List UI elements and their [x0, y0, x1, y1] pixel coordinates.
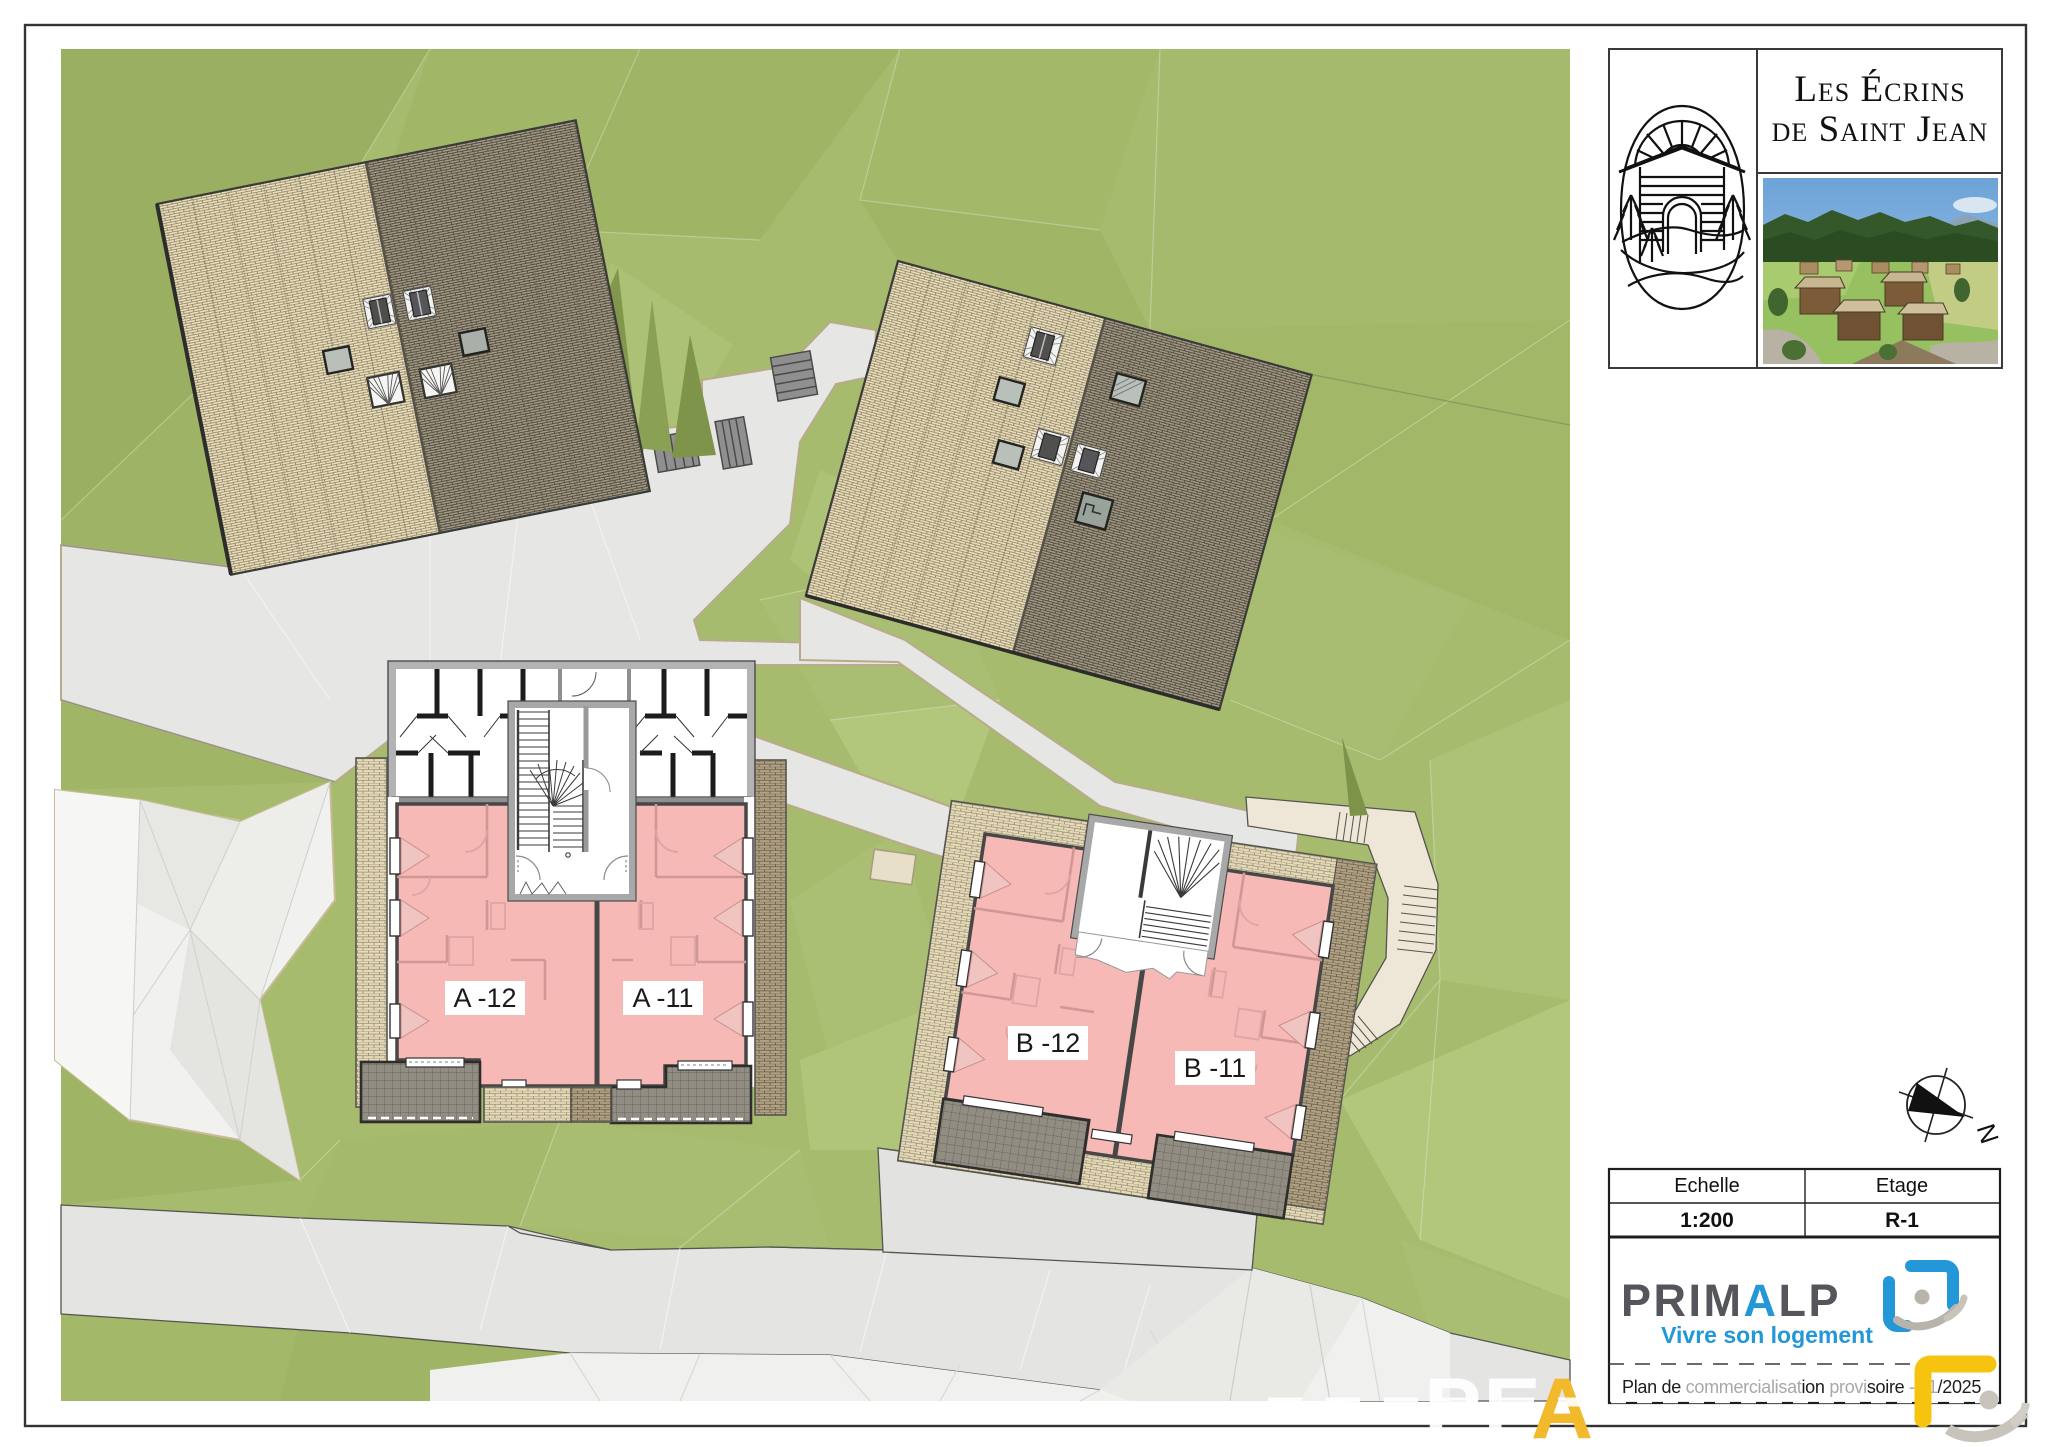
svg-text:A -12: A -12 — [453, 983, 516, 1013]
svg-text:A -11: A -11 — [632, 983, 693, 1013]
svg-text:Etage: Etage — [1876, 1175, 1928, 1197]
svg-text:Echelle: Echelle — [1674, 1175, 1740, 1197]
svg-text:de Saint Jean: de Saint Jean — [1772, 109, 1989, 150]
svg-text:R-1: R-1 — [1885, 1209, 1919, 1232]
svg-text:B -12: B -12 — [1016, 1028, 1081, 1058]
svg-text:Vivre son logement: Vivre son logement — [1661, 1322, 1873, 1348]
svg-text:B -11: B -11 — [1184, 1053, 1247, 1083]
svg-text:PRIMALP: PRIMALP — [1621, 1275, 1841, 1326]
svg-text:Les Écrins: Les Écrins — [1794, 68, 1965, 110]
svg-text:1:200: 1:200 — [1680, 1209, 1734, 1232]
